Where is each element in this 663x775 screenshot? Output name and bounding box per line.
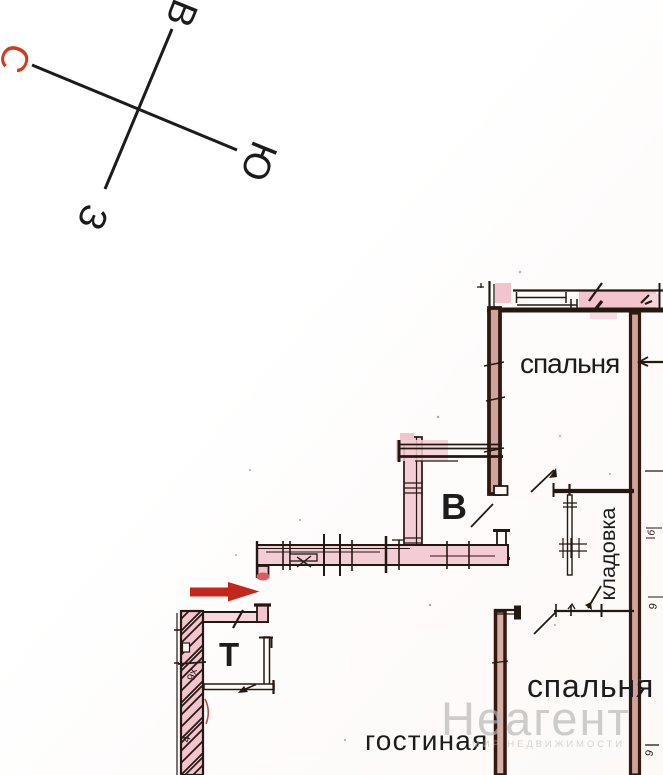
svg-text:Т: Т xyxy=(219,636,239,673)
svg-text:Неагент: Неагент xyxy=(441,692,631,745)
svg-text:МИР НЕДВИЖИМОСТИ: МИР НЕДВИЖИМОСТИ xyxy=(472,739,625,750)
svg-text:спальня: спальня xyxy=(520,348,619,379)
svg-text:В: В xyxy=(441,486,467,527)
